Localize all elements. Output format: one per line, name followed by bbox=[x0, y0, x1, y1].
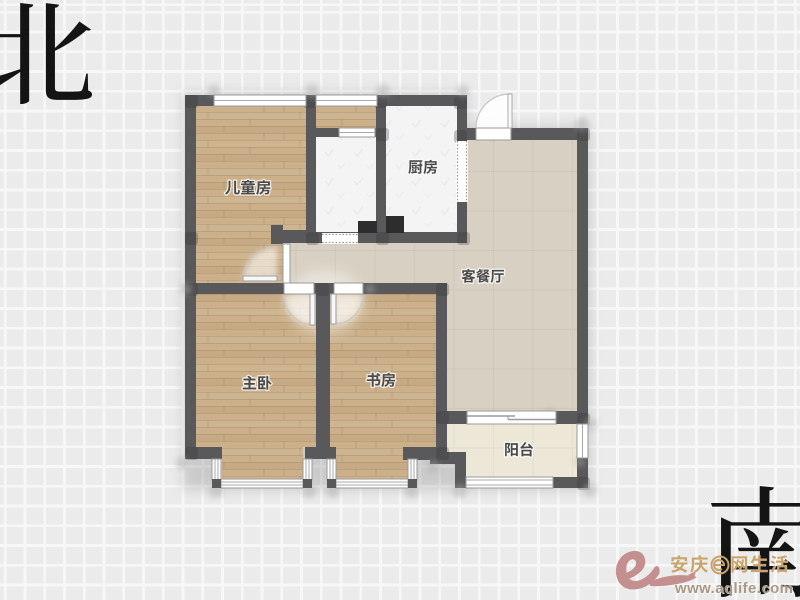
svg-text:www.aqlife.com: www.aqlife.com bbox=[674, 580, 793, 597]
